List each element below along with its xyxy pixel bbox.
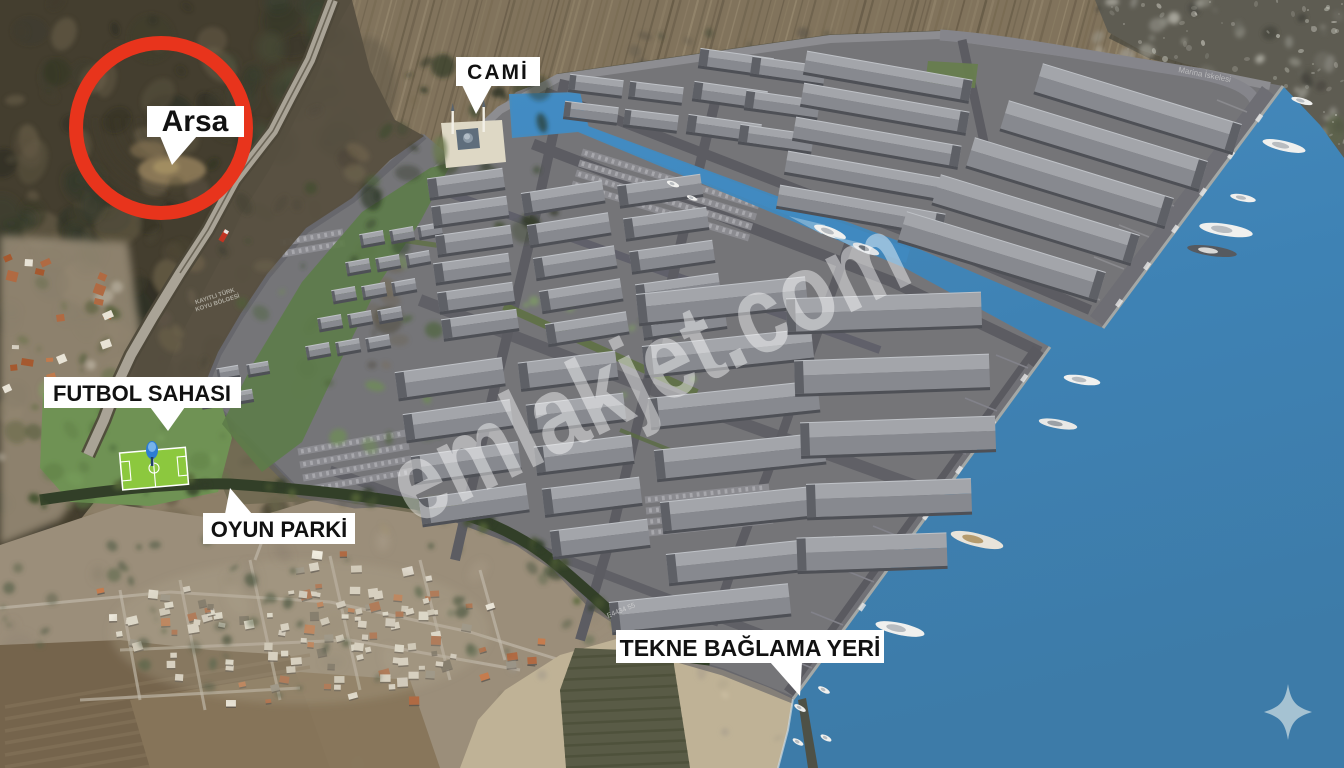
svg-text:TEKNE BAĞLAMA YERİ: TEKNE BAĞLAMA YERİ: [620, 634, 881, 661]
svg-text:Arsa: Arsa: [162, 105, 229, 138]
svg-text:FUTBOL SAHASI: FUTBOL SAHASI: [53, 381, 231, 406]
svg-text:OYUN PARKİ: OYUN PARKİ: [211, 517, 348, 542]
svg-text:CAMİ: CAMİ: [467, 61, 529, 84]
